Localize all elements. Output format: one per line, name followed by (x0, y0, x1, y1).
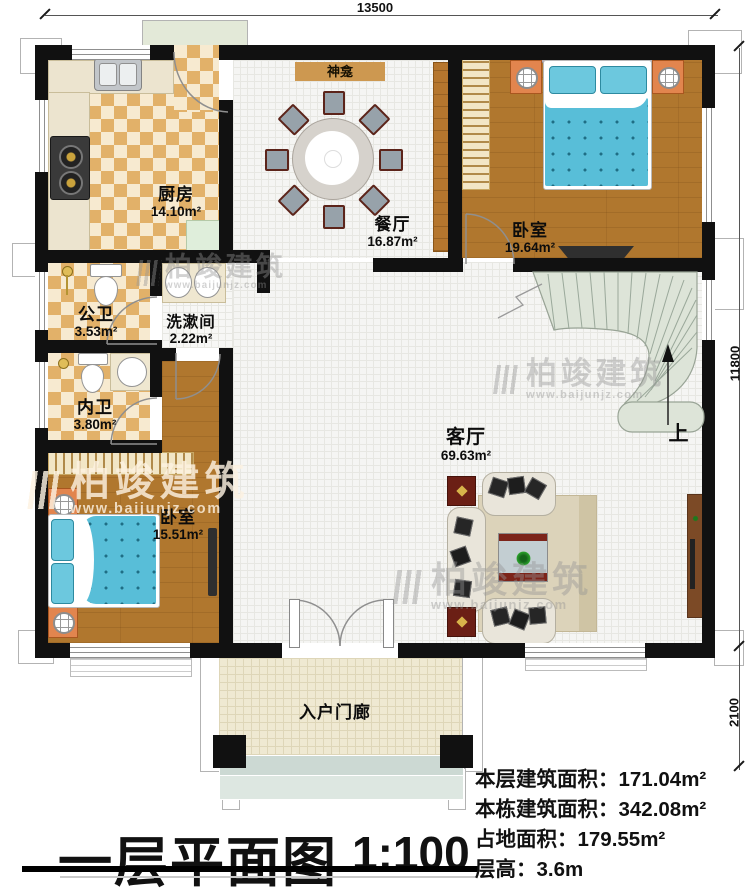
dimension-width: 13500 (340, 0, 410, 15)
stairs-up-label: 上 (664, 423, 694, 445)
room-label-bedroom-top: 卧室19.64m² (494, 221, 566, 255)
room-label-washroom: 洗漱间2.22m² (150, 314, 232, 346)
window (702, 280, 715, 340)
room-label-private-bath: 内卫3.80m² (60, 398, 130, 432)
dimension-height-main: 11800 (728, 329, 743, 399)
porch-column (440, 735, 473, 768)
stat-building-area: 本栋建筑面积：342.08m² (475, 792, 706, 822)
room-label-living: 客厅69.63m² (420, 427, 512, 463)
window (35, 272, 48, 330)
entry-door-panel (383, 599, 394, 648)
corridor-door-arc (176, 354, 220, 399)
page-title: 一层平面图 (58, 818, 338, 890)
kitchen-door-arc (174, 52, 228, 112)
window (525, 643, 645, 658)
dimension-height-porch: 2100 (727, 678, 742, 748)
stair-break-mark (498, 284, 542, 318)
title-underline (22, 866, 478, 872)
dimension-line-top (45, 15, 718, 16)
window (35, 100, 48, 172)
floor-plan-page: 神龛 厨房14.10m² 餐厅16.87m² 卧室19.64m² 公卫3.53m… (0, 0, 750, 890)
room-label-dining: 餐厅16.87m² (355, 215, 430, 249)
window (702, 108, 715, 222)
stat-land-area: 占地面积：179.55m² (475, 822, 665, 852)
window (72, 45, 150, 60)
door-swing-arcs (107, 52, 514, 646)
room-label-bedroom-left: 卧室15.51m² (142, 508, 214, 542)
window (70, 643, 190, 658)
spiral-staircase (498, 272, 704, 432)
porch-column (213, 735, 246, 768)
room-label-porch: 入户门廊 (272, 703, 398, 722)
entry-door-arc (340, 600, 386, 646)
room-label-kitchen: 厨房14.10m² (140, 185, 212, 219)
entry-door-panel (289, 599, 300, 648)
shrine-label: 神龛 (327, 64, 353, 79)
window (35, 362, 48, 428)
room-label-public-bath: 公卫3.53m² (61, 305, 131, 339)
title-underline-thin (60, 876, 478, 878)
stat-floor-area: 本层建筑面积：171.04m² (475, 762, 706, 792)
stat-floor-height: 层高：3.6m (475, 852, 583, 882)
shrine-box: 神龛 (295, 62, 385, 81)
entry-door-arc (294, 600, 340, 646)
dimension-line-right (739, 48, 740, 770)
plan-annotations-svg (0, 0, 750, 890)
